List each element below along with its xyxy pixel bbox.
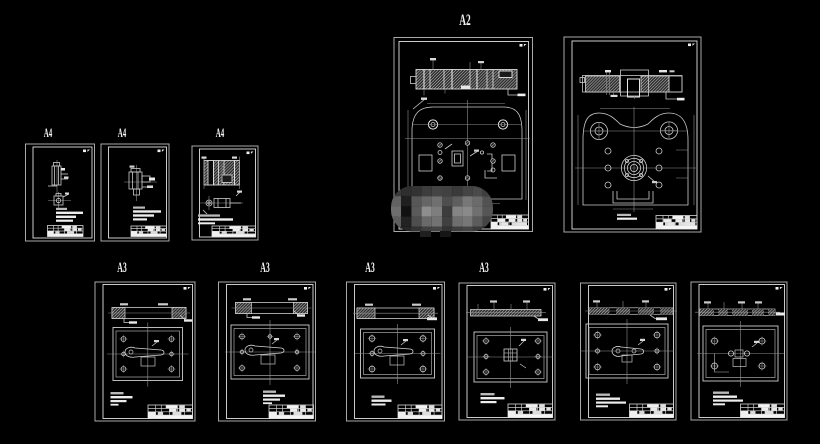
svg-text:A4: A4 bbox=[118, 125, 127, 140]
svg-text:A4: A4 bbox=[44, 125, 53, 140]
svg-text:A3: A3 bbox=[260, 260, 270, 276]
svg-text:A3: A3 bbox=[117, 260, 127, 276]
svg-text:A4: A4 bbox=[216, 125, 225, 140]
svg-text:A3: A3 bbox=[479, 260, 489, 276]
svg-text:A2: A2 bbox=[459, 12, 471, 29]
svg-text:A3: A3 bbox=[365, 260, 375, 276]
